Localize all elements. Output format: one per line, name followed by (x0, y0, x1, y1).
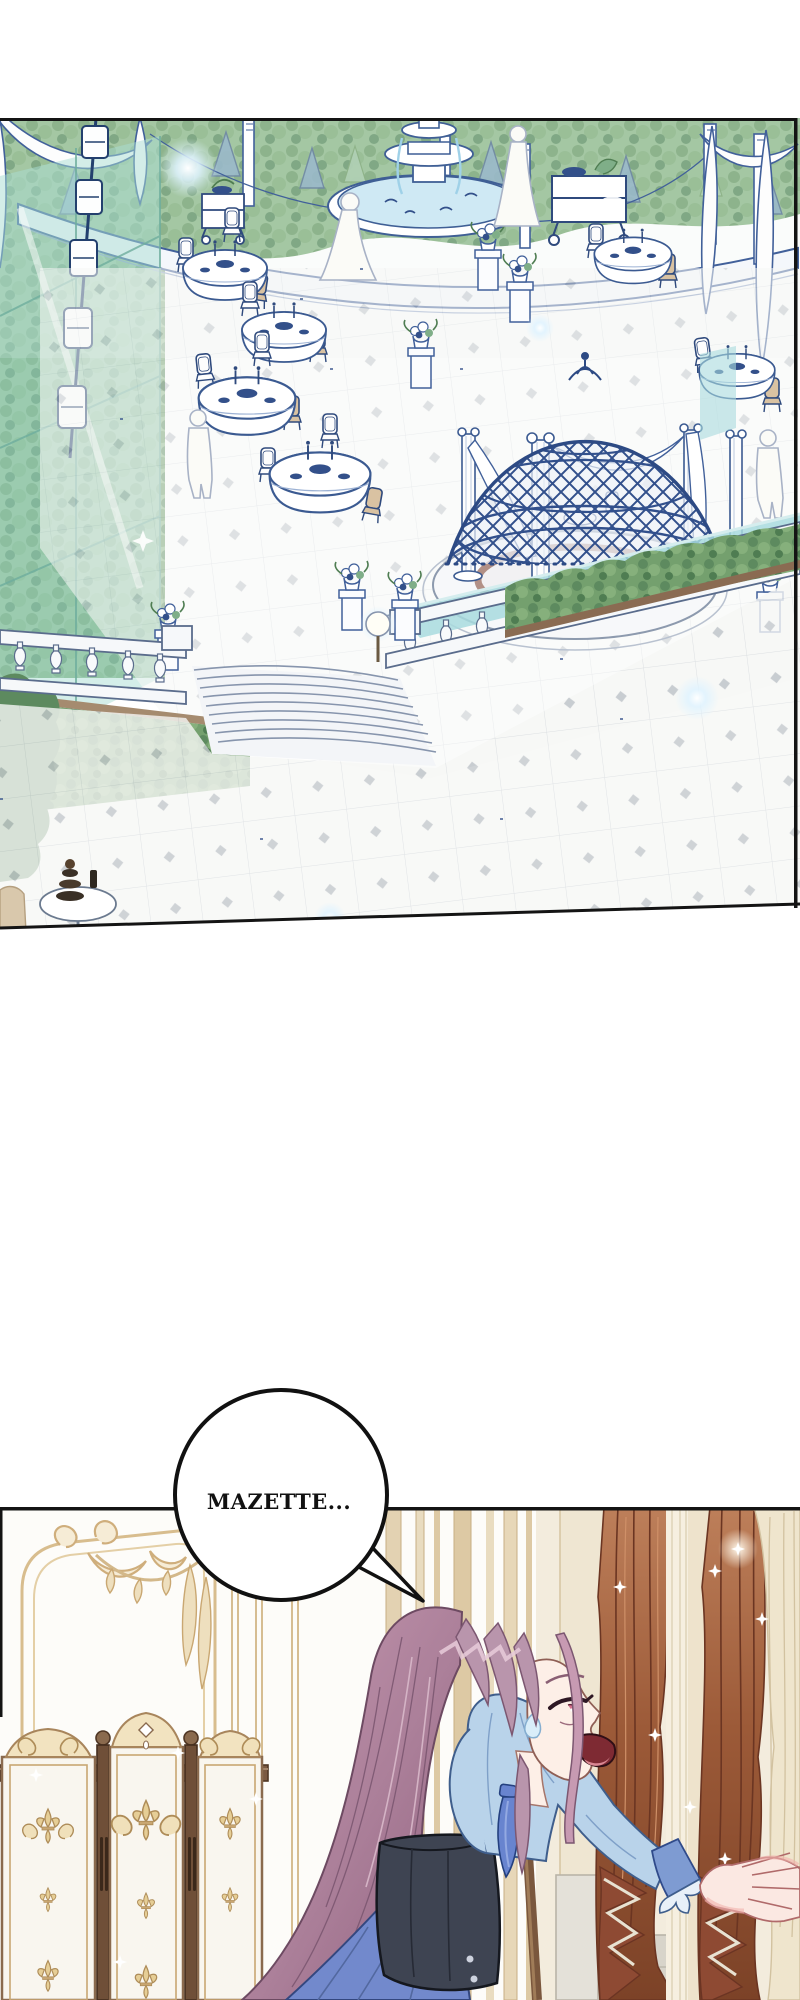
speech-bubble: MAZETTE... (150, 1368, 470, 1648)
folding-screen (0, 1713, 268, 2000)
garden-terrace-art (0, 118, 800, 930)
screen-panel (110, 1713, 183, 2000)
heroine-corset (377, 1835, 500, 1990)
speech-bubble-text: MAZETTE... (207, 1489, 351, 1514)
garden-terrace-panel (0, 118, 800, 930)
screen-panel (198, 1731, 262, 2000)
figure-tan (0, 887, 26, 930)
screen-panel (2, 1729, 95, 2000)
stairs (192, 666, 436, 766)
